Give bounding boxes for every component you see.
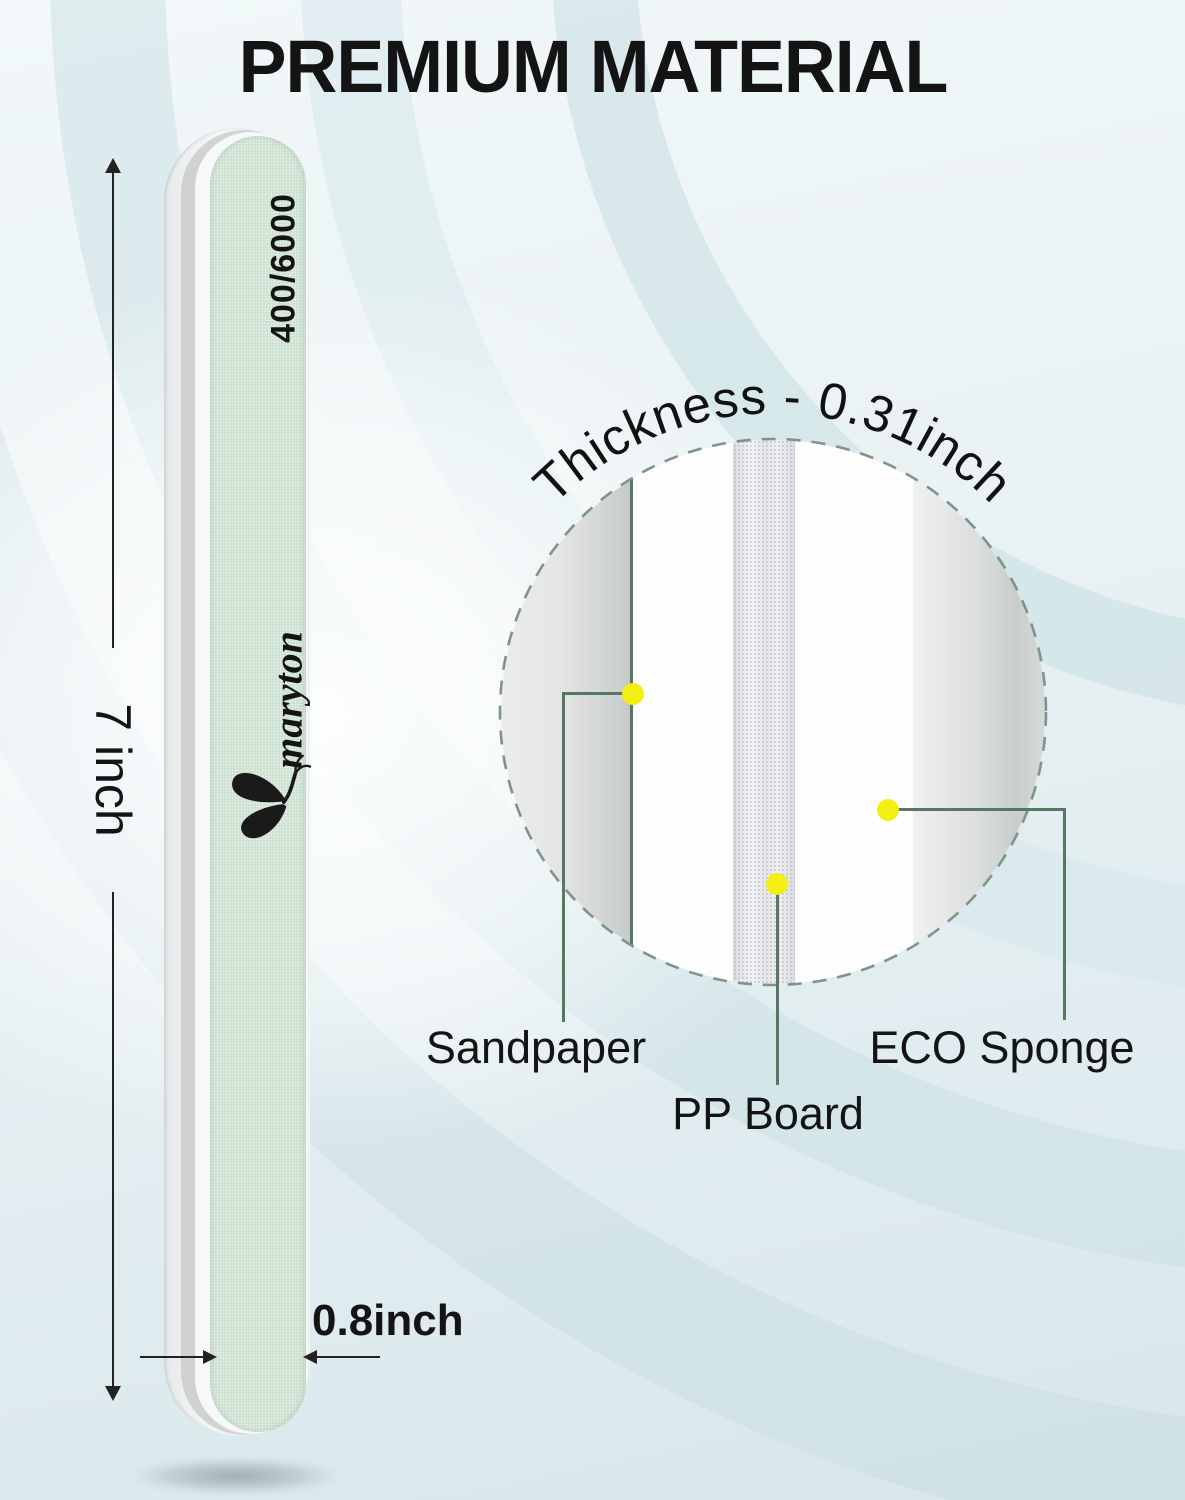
eco-sponge-marker-dot — [877, 799, 899, 821]
cross-section-circle — [501, 440, 1045, 984]
pp-board-label: PP Board — [672, 1088, 864, 1140]
pp-board-band — [733, 440, 795, 984]
length-dimension-line — [112, 170, 114, 648]
eco-sponge-callout-line — [1063, 808, 1066, 1020]
length-dimension-line — [112, 892, 114, 1388]
butterfly-icon — [216, 743, 323, 854]
eco-sponge-band — [913, 440, 1045, 984]
sandpaper-edge-line — [630, 440, 633, 984]
grit-label: 400/6000 — [265, 193, 304, 343]
width-dimension-line — [140, 1356, 206, 1358]
arrow-right-icon — [203, 1350, 217, 1364]
eco-sponge-callout-line — [896, 808, 1066, 811]
page-title: PREMIUM MATERIAL — [238, 24, 947, 109]
sandpaper-callout-line — [562, 692, 565, 1022]
pp-board-callout-line — [776, 884, 779, 1085]
file-drop-shadow — [133, 1458, 338, 1494]
eco-sponge-label: ECO Sponge — [869, 1022, 1134, 1074]
sandpaper-label: Sandpaper — [426, 1022, 646, 1074]
arrow-up-icon — [105, 158, 121, 173]
pp-board-marker-dot — [766, 873, 788, 895]
sandpaper-layer-band — [501, 440, 633, 984]
width-dimension-line — [314, 1356, 380, 1358]
sandpaper-marker-dot — [622, 683, 644, 705]
arrow-left-icon — [303, 1350, 317, 1364]
width-label: 0.8inch — [312, 1296, 464, 1346]
arrow-down-icon — [105, 1386, 121, 1401]
product-infographic: PREMIUM MATERIAL 400/6000 maryton 7 inch… — [0, 0, 1185, 1500]
length-label: 7 inch — [84, 703, 142, 836]
